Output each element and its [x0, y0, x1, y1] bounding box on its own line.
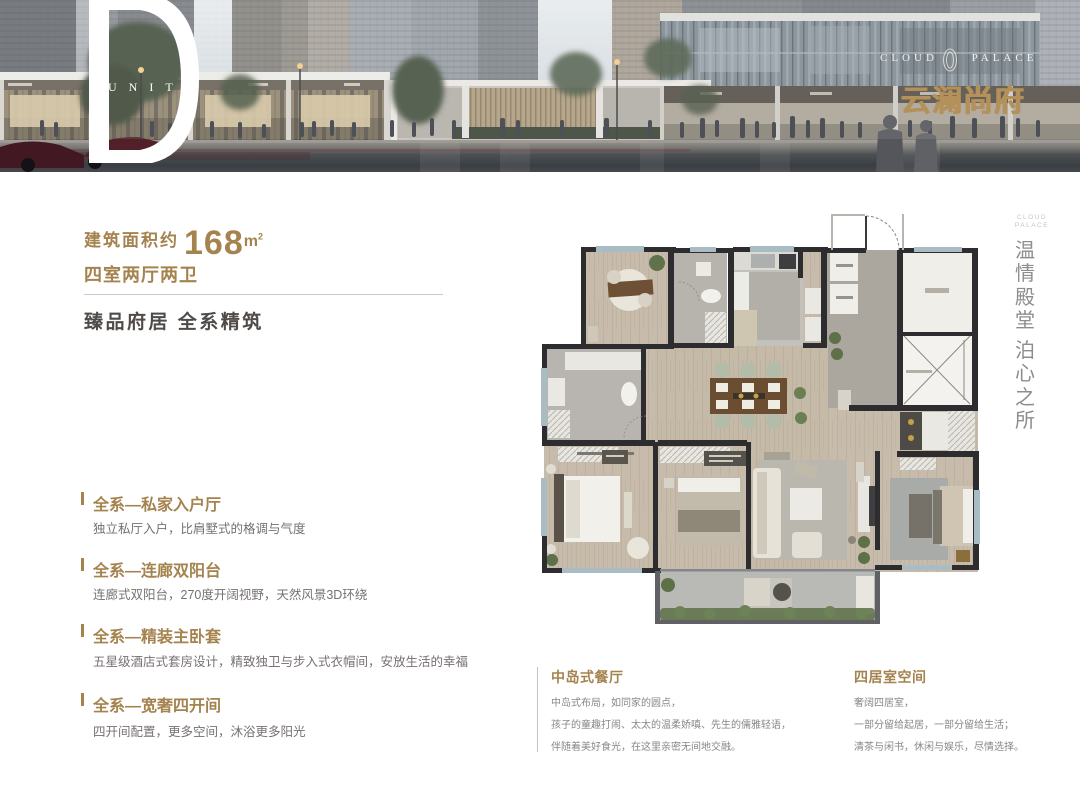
- svg-text:UNIT: UNIT: [108, 80, 185, 94]
